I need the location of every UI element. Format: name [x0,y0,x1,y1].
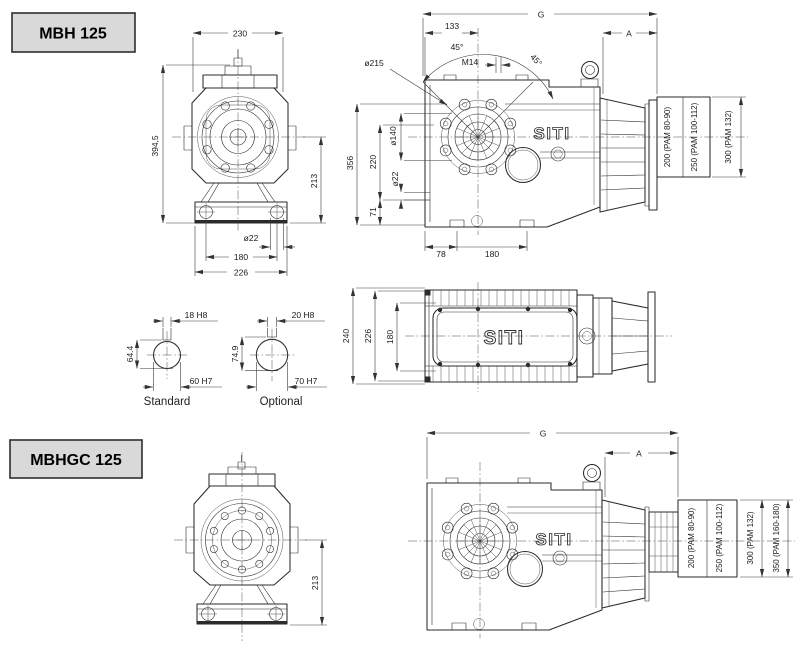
dim-mbh-front-top-width: 230 [233,29,247,39]
pam-label-mbh-300: 300 (PAM 132) [724,110,733,164]
pam-label-mbhgc-350: 350 (PAM 160-180) [772,503,781,573]
dim-mbh-side-foot-height: 71 [368,207,378,217]
mbhgc-model-label: MBHGC 125 [10,440,142,478]
pam-label-mbhgc-300: 300 (PAM 132) [746,511,755,565]
shaft-section-standard: 18 H8 64.4 60 H7 Standard [125,310,222,408]
standard-caption: Standard [144,396,191,408]
dim-optional-key-width: 20 H8 [292,310,315,320]
dim-mbh-side-A: A [626,29,632,39]
shaft-section-optional: 20 H8 74.9 70 H7 Optional [230,310,327,408]
dim-mbh-side-input-offset: 133 [445,21,459,31]
dim-mbhgc-front-shaft-height: 213 [310,576,320,590]
mbh-side-view: SITI 200 (PAM 80-90) 250 (PAM 100-112) 3… [345,10,748,260]
dim-standard-bore: 60 H7 [190,376,213,386]
dim-mbh-side-foot-spacing: 180 [485,249,499,259]
pam-label-mbhgc-200: 200 (PAM 80-90) [687,508,696,569]
dim-mbh-front-shaft-height: 213 [309,174,319,188]
dim-mbh-side-height: 356 [345,156,355,170]
mbh-top-view: SITI 240 226 180 [341,282,672,392]
dim-mbh-front-base-width: 226 [234,268,248,278]
dim-top-housing-width: 226 [363,329,373,343]
pam-label-mbhgc-250: 250 (PAM 100-112) [715,503,724,572]
dim-mbh-side-foot-offset: 78 [436,249,446,259]
dim-standard-key-depth: 64.4 [125,345,135,362]
dim-mbh-side-angle-left: 45° [451,42,464,52]
mbhgc-model-text: MBHGC 125 [30,452,122,469]
dim-mbh-side-G: G [538,10,545,20]
drawing-canvas: MBH 125 [0,0,804,646]
dim-mbh-side-mid-height: 220 [368,155,378,169]
dim-mbh-front-foot-spacing: 180 [234,252,248,262]
dim-mbh-side-spigot-dia: ø140 [388,126,398,146]
mbhgc-side-view: SITI 200 (PAM 80-90) 250 (PAM 100-112) 3… [408,429,795,639]
dim-top-overall-width: 240 [341,329,351,343]
mbh-model-label: MBH 125 [12,13,135,52]
dim-mbh-side-hole-dia: ø22 [390,171,400,186]
dim-standard-key-width: 18 H8 [185,310,208,320]
drawing-sheet: MBH 125 [0,0,804,646]
siti-logo-side-mbhgc: SITI [535,530,572,549]
mbhgc-front-view: 213 [174,452,327,641]
dim-mbh-side-flange-dia: ø215 [364,58,384,68]
dim-mbhgc-side-G: G [540,429,547,439]
optional-caption: Optional [260,396,303,408]
dim-mbh-side-tap: M14 [462,57,479,67]
pam-label-mbh-250: 250 (PAM 100-112) [690,102,699,171]
siti-logo-side: SITI [533,124,570,143]
dim-mbh-front-foot-hole: ø22 [244,233,259,243]
pam-label-mbh-200: 200 (PAM 80-90) [663,107,672,168]
mbh-front-view: 230 394,5 213 ø22 180 226 [150,29,326,278]
dim-optional-key-depth: 74.9 [230,345,240,362]
siti-logo-top: SITI [484,328,525,349]
dim-top-cover-width: 180 [385,330,395,344]
dim-mbhgc-side-A: A [636,449,642,459]
dim-mbh-side-angle-right: 45° [528,52,544,68]
dim-mbh-front-overall-height: 394,5 [150,135,160,157]
mbh-model-text: MBH 125 [39,26,107,43]
dim-optional-bore: 70 H7 [295,376,318,386]
